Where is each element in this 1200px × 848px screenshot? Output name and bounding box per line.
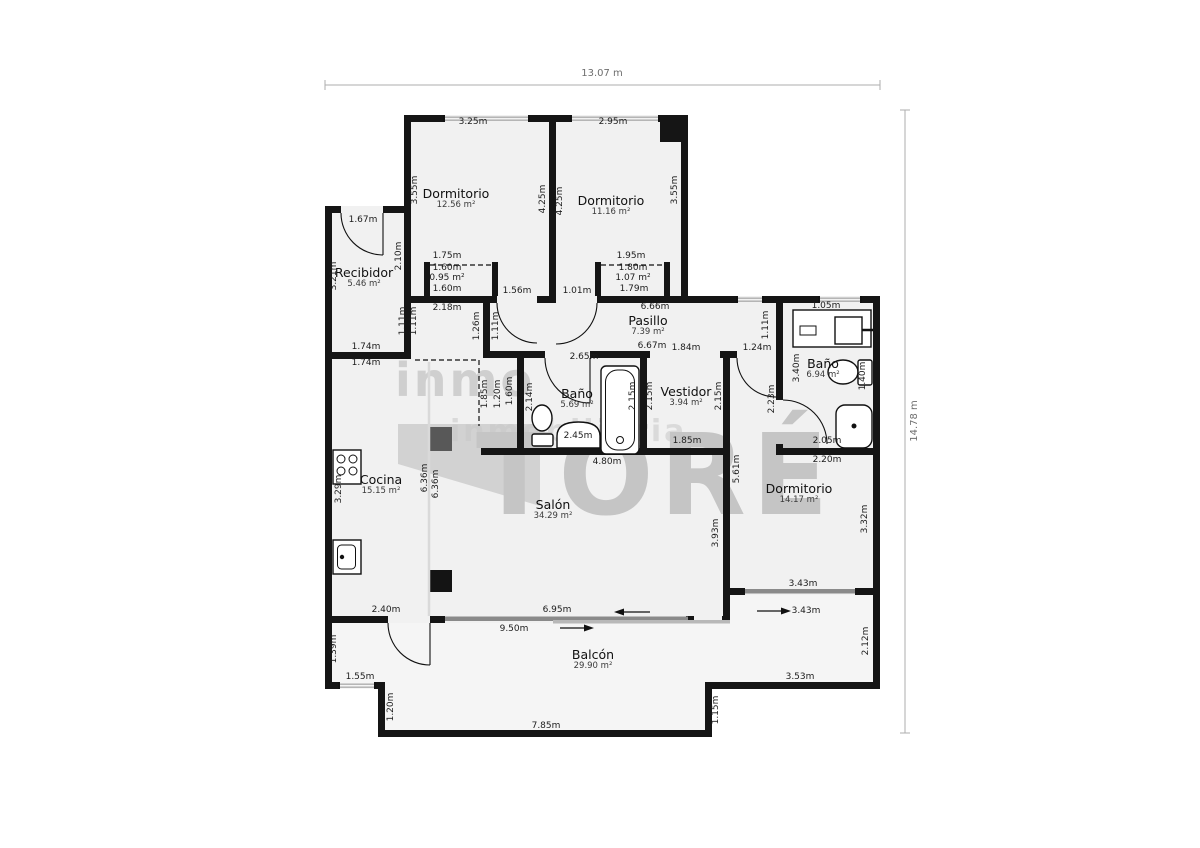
bathtub-icon (601, 366, 639, 454)
shower-icon (836, 405, 872, 448)
watermark-brand-main: TORÉ (476, 409, 834, 541)
stove-icon (333, 450, 361, 484)
toilet-icon (532, 405, 553, 446)
overall-width-label: 13.07 m (581, 68, 623, 79)
sliding-door-panel (553, 620, 730, 624)
watermark-brand-top: inmo (395, 353, 535, 407)
overall-height-label: 14.78 m (909, 400, 920, 442)
kitchen-sink-icon (333, 540, 361, 574)
sliding-door-track (745, 589, 855, 594)
watermark-logo-window (428, 427, 452, 451)
watermark-logo-door (428, 570, 452, 592)
toilet-icon (828, 360, 872, 385)
floor-plan-page: inmo inmobiliaria TORÉ (0, 0, 1200, 848)
floor-plan-drawing: inmo inmobiliaria TORÉ (0, 0, 1200, 848)
bidet-icon (557, 422, 600, 448)
vanity-icon (793, 310, 873, 347)
